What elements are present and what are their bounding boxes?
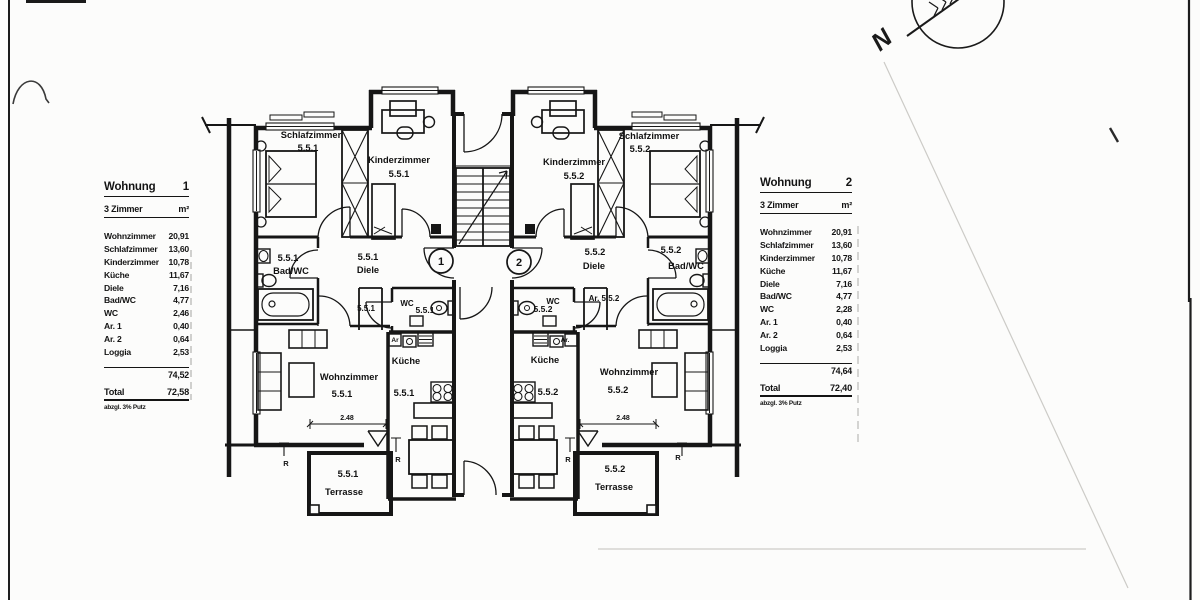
apt1-schlafzimmer-label: Schlafzimmer xyxy=(281,130,342,140)
apt1-kinderzimmer-label: Kinderzimmer xyxy=(368,155,430,165)
table2-subtotal: 74,64 xyxy=(760,363,852,377)
apt1-terrasse-label: Terrasse xyxy=(325,487,363,497)
apt1-dimension: 2.48 xyxy=(340,415,354,422)
apt2-wohnzimmer-num: 5.5.2 xyxy=(608,385,629,395)
apt1-terrasse-num: 5.5.1 xyxy=(338,469,359,479)
table-row: Bad/WC4,77 xyxy=(760,291,852,304)
row-label: WC xyxy=(104,308,118,321)
table1-subtitle: 3 Zimmer xyxy=(104,204,142,214)
row-label: Küche xyxy=(104,270,129,283)
unit-1-number: 1 xyxy=(438,256,444,268)
apt1-kueche-num: 5.5.1 xyxy=(394,388,415,398)
table-row: Kinderzimmer10,78 xyxy=(104,257,189,270)
row-label: Küche xyxy=(760,266,785,279)
apt2-wohnzimmer-label: Wohnzimmer xyxy=(600,367,659,377)
row-value: 7,16 xyxy=(836,279,852,292)
row-label: Diele xyxy=(760,279,780,292)
table1-title: Wohnung xyxy=(104,181,155,193)
row-value: 13,60 xyxy=(168,244,189,257)
row-label: Schlafzimmer xyxy=(760,240,813,253)
table2-title-row: Wohnung 2 xyxy=(760,177,852,193)
apt1-wohnzimmer-label: Wohnzimmer xyxy=(320,372,379,382)
row-label: Ar. 1 xyxy=(104,321,122,334)
apt2-kueche-num: 5.5.2 xyxy=(538,387,559,397)
north-label: N xyxy=(866,23,899,57)
row-label: Wohnzimmer xyxy=(104,231,156,244)
table-row: Wohnzimmer20,91 xyxy=(104,231,189,244)
apt1-kinderzimmer-num: 5.5.1 xyxy=(389,169,410,179)
room-labels: 1 2 Schlafzimmer 5.5.1 Kinderzimmer 5.5.… xyxy=(273,130,704,497)
apt2-schlafzimmer-num: 5.5.2 xyxy=(630,144,651,154)
apt1-diele-label: Diele xyxy=(357,265,379,275)
apt2-terrasse-label: Terrasse xyxy=(595,482,633,492)
apt1-diele-num: 5.5.1 xyxy=(358,252,379,262)
row-value: 2,53 xyxy=(173,347,189,360)
row-label: Ar. 1 xyxy=(760,317,778,330)
table-row: Ar. 10,40 xyxy=(104,321,189,334)
table2-total-label: Total xyxy=(760,383,780,393)
row-value: 10,78 xyxy=(831,253,852,266)
table-row: WC2,28 xyxy=(760,304,852,317)
apt2-kinderzimmer-label: Kinderzimmer xyxy=(543,157,605,167)
apt2-bad-label: Bad/WC xyxy=(668,261,704,271)
row-label: Loggia xyxy=(104,347,131,360)
row-value: 11,67 xyxy=(169,270,189,283)
row-value: 0,64 xyxy=(836,330,852,343)
table2-number: 2 xyxy=(846,177,852,189)
apt1-rainpipe-label-2: R xyxy=(283,459,289,468)
apt2-kueche-label: Küche xyxy=(531,355,559,365)
apt1-wohnzimmer-num: 5.5.1 xyxy=(332,389,353,399)
apt1-wc-num: 5.5.1 xyxy=(416,305,435,315)
table1-total-label: Total xyxy=(104,387,124,397)
apartment-geometry xyxy=(202,87,456,514)
table-row: WC2,46 xyxy=(104,308,189,321)
row-label: Kinderzimmer xyxy=(104,257,159,270)
table2-subtitle: 3 Zimmer xyxy=(760,200,798,210)
row-value: 11,67 xyxy=(832,266,852,279)
apt2-diele-label: Diele xyxy=(583,261,605,271)
row-label: Bad/WC xyxy=(104,295,136,308)
apt1-abstellraum-label: 5.5.1 xyxy=(357,304,375,313)
apt2-diele-num: 5.5.2 xyxy=(585,247,606,257)
table1-rows: Wohnzimmer20,91 Schlafzimmer13,60 Kinder… xyxy=(104,231,189,360)
table1-subtitle-row: 3 Zimmer m² xyxy=(104,204,189,218)
table-row: Küche11,67 xyxy=(104,270,189,283)
apt2-schlafzimmer-label: Schlafzimmer xyxy=(619,131,680,141)
row-label: Ar. 2 xyxy=(760,330,778,343)
table-row: Kinderzimmer10,78 xyxy=(760,253,852,266)
row-value: 0,40 xyxy=(173,321,189,334)
table-row: Küche11,67 xyxy=(760,266,852,279)
apt2-wc-num: 5.5.2 xyxy=(534,304,553,314)
table1-subtotal: 74,52 xyxy=(104,367,189,381)
row-value: 4,77 xyxy=(173,295,189,308)
table-row: Ar. 10,40 xyxy=(760,317,852,330)
apt2-abstellraum-label: Ar. 5.5.2 xyxy=(589,294,620,303)
table2-title: Wohnung xyxy=(760,177,811,189)
table2-rows: Wohnzimmer20,91 Schlafzimmer13,60 Kinder… xyxy=(760,227,852,356)
area-table-wohnung-1: Wohnung 1 3 Zimmer m² Wohnzimmer20,91 Sc… xyxy=(104,181,189,411)
table1-total-value: 72,58 xyxy=(167,387,189,397)
table-row: Diele7,16 xyxy=(760,279,852,292)
table-row: Loggia2,53 xyxy=(760,343,852,356)
row-label: Diele xyxy=(104,283,124,296)
apt1-schlafzimmer-num: 5.5.1 xyxy=(298,143,319,153)
table1-unit: m² xyxy=(178,204,189,214)
table1-title-row: Wohnung 1 xyxy=(104,181,189,197)
row-value: 20,91 xyxy=(168,231,189,244)
table-row: Bad/WC4,77 xyxy=(104,295,189,308)
apt1-wc-label: WC xyxy=(400,299,414,308)
row-value: 2,53 xyxy=(836,343,852,356)
table2-total-value: 72,40 xyxy=(830,383,852,393)
row-label: Bad/WC xyxy=(760,291,792,304)
row-label: Schlafzimmer xyxy=(104,244,157,257)
apt2-ar-label: Ar. xyxy=(561,337,570,344)
apt2-kinderzimmer-num: 5.5.2 xyxy=(564,171,585,181)
table2-footnote: abzgl. 3% Putz xyxy=(760,400,852,407)
row-label: Ar. 2 xyxy=(104,334,122,347)
apt2-bad-num: 5.5.2 xyxy=(661,245,682,255)
row-value: 10,78 xyxy=(168,257,189,270)
table-row: Schlafzimmer13,60 xyxy=(104,244,189,257)
apt1-rainpipe-label: R xyxy=(395,455,401,464)
unit-2-number: 2 xyxy=(516,257,522,269)
area-table-wohnung-2: Wohnung 2 3 Zimmer m² Wohnzimmer20,91 Sc… xyxy=(760,177,852,407)
row-value: 0,64 xyxy=(173,334,189,347)
compass-north-arrow: N xyxy=(866,0,1004,57)
row-value: 20,91 xyxy=(831,227,852,240)
row-value: 7,16 xyxy=(173,283,189,296)
row-label: WC xyxy=(760,304,774,317)
apt1-kueche-label: Küche xyxy=(392,356,420,366)
table-row: Ar. 20,64 xyxy=(104,334,189,347)
row-value: 4,77 xyxy=(836,291,852,304)
row-value: 2,28 xyxy=(836,304,852,317)
table2-subtitle-row: 3 Zimmer m² xyxy=(760,200,852,214)
row-label: Loggia xyxy=(760,343,787,356)
table-row: Loggia2,53 xyxy=(104,347,189,360)
apt2-terrasse-num: 5.5.2 xyxy=(605,464,626,474)
row-label: Wohnzimmer xyxy=(760,227,812,240)
table-row: Schlafzimmer13,60 xyxy=(760,240,852,253)
stairwell-core xyxy=(429,114,531,495)
apt1-ar-label: Ar xyxy=(391,337,399,344)
apt2-rainpipe-label: R xyxy=(675,453,681,462)
table1-footnote: abzgl. 3% Putz xyxy=(104,404,189,411)
row-value: 0,40 xyxy=(836,317,852,330)
row-label: Kinderzimmer xyxy=(760,253,815,266)
table2-unit: m² xyxy=(841,200,852,210)
scanned-floorplan-page: N xyxy=(0,0,1200,600)
apt2-dimension: 2.48 xyxy=(616,415,630,422)
row-value: 2,46 xyxy=(173,308,189,321)
row-value: 13,60 xyxy=(831,240,852,253)
table-row: Diele7,16 xyxy=(104,283,189,296)
apt1-bad-label: Bad/WC xyxy=(273,266,309,276)
table1-total-row: Total 72,58 xyxy=(104,383,189,401)
table2-total-row: Total 72,40 xyxy=(760,379,852,397)
table-row: Ar. 20,64 xyxy=(760,330,852,343)
apt2-rainpipe-label-2: R xyxy=(565,455,571,464)
table1-number: 1 xyxy=(183,181,189,193)
table-row: Wohnzimmer20,91 xyxy=(760,227,852,240)
apt1-bad-num: 5.5.1 xyxy=(278,253,299,263)
